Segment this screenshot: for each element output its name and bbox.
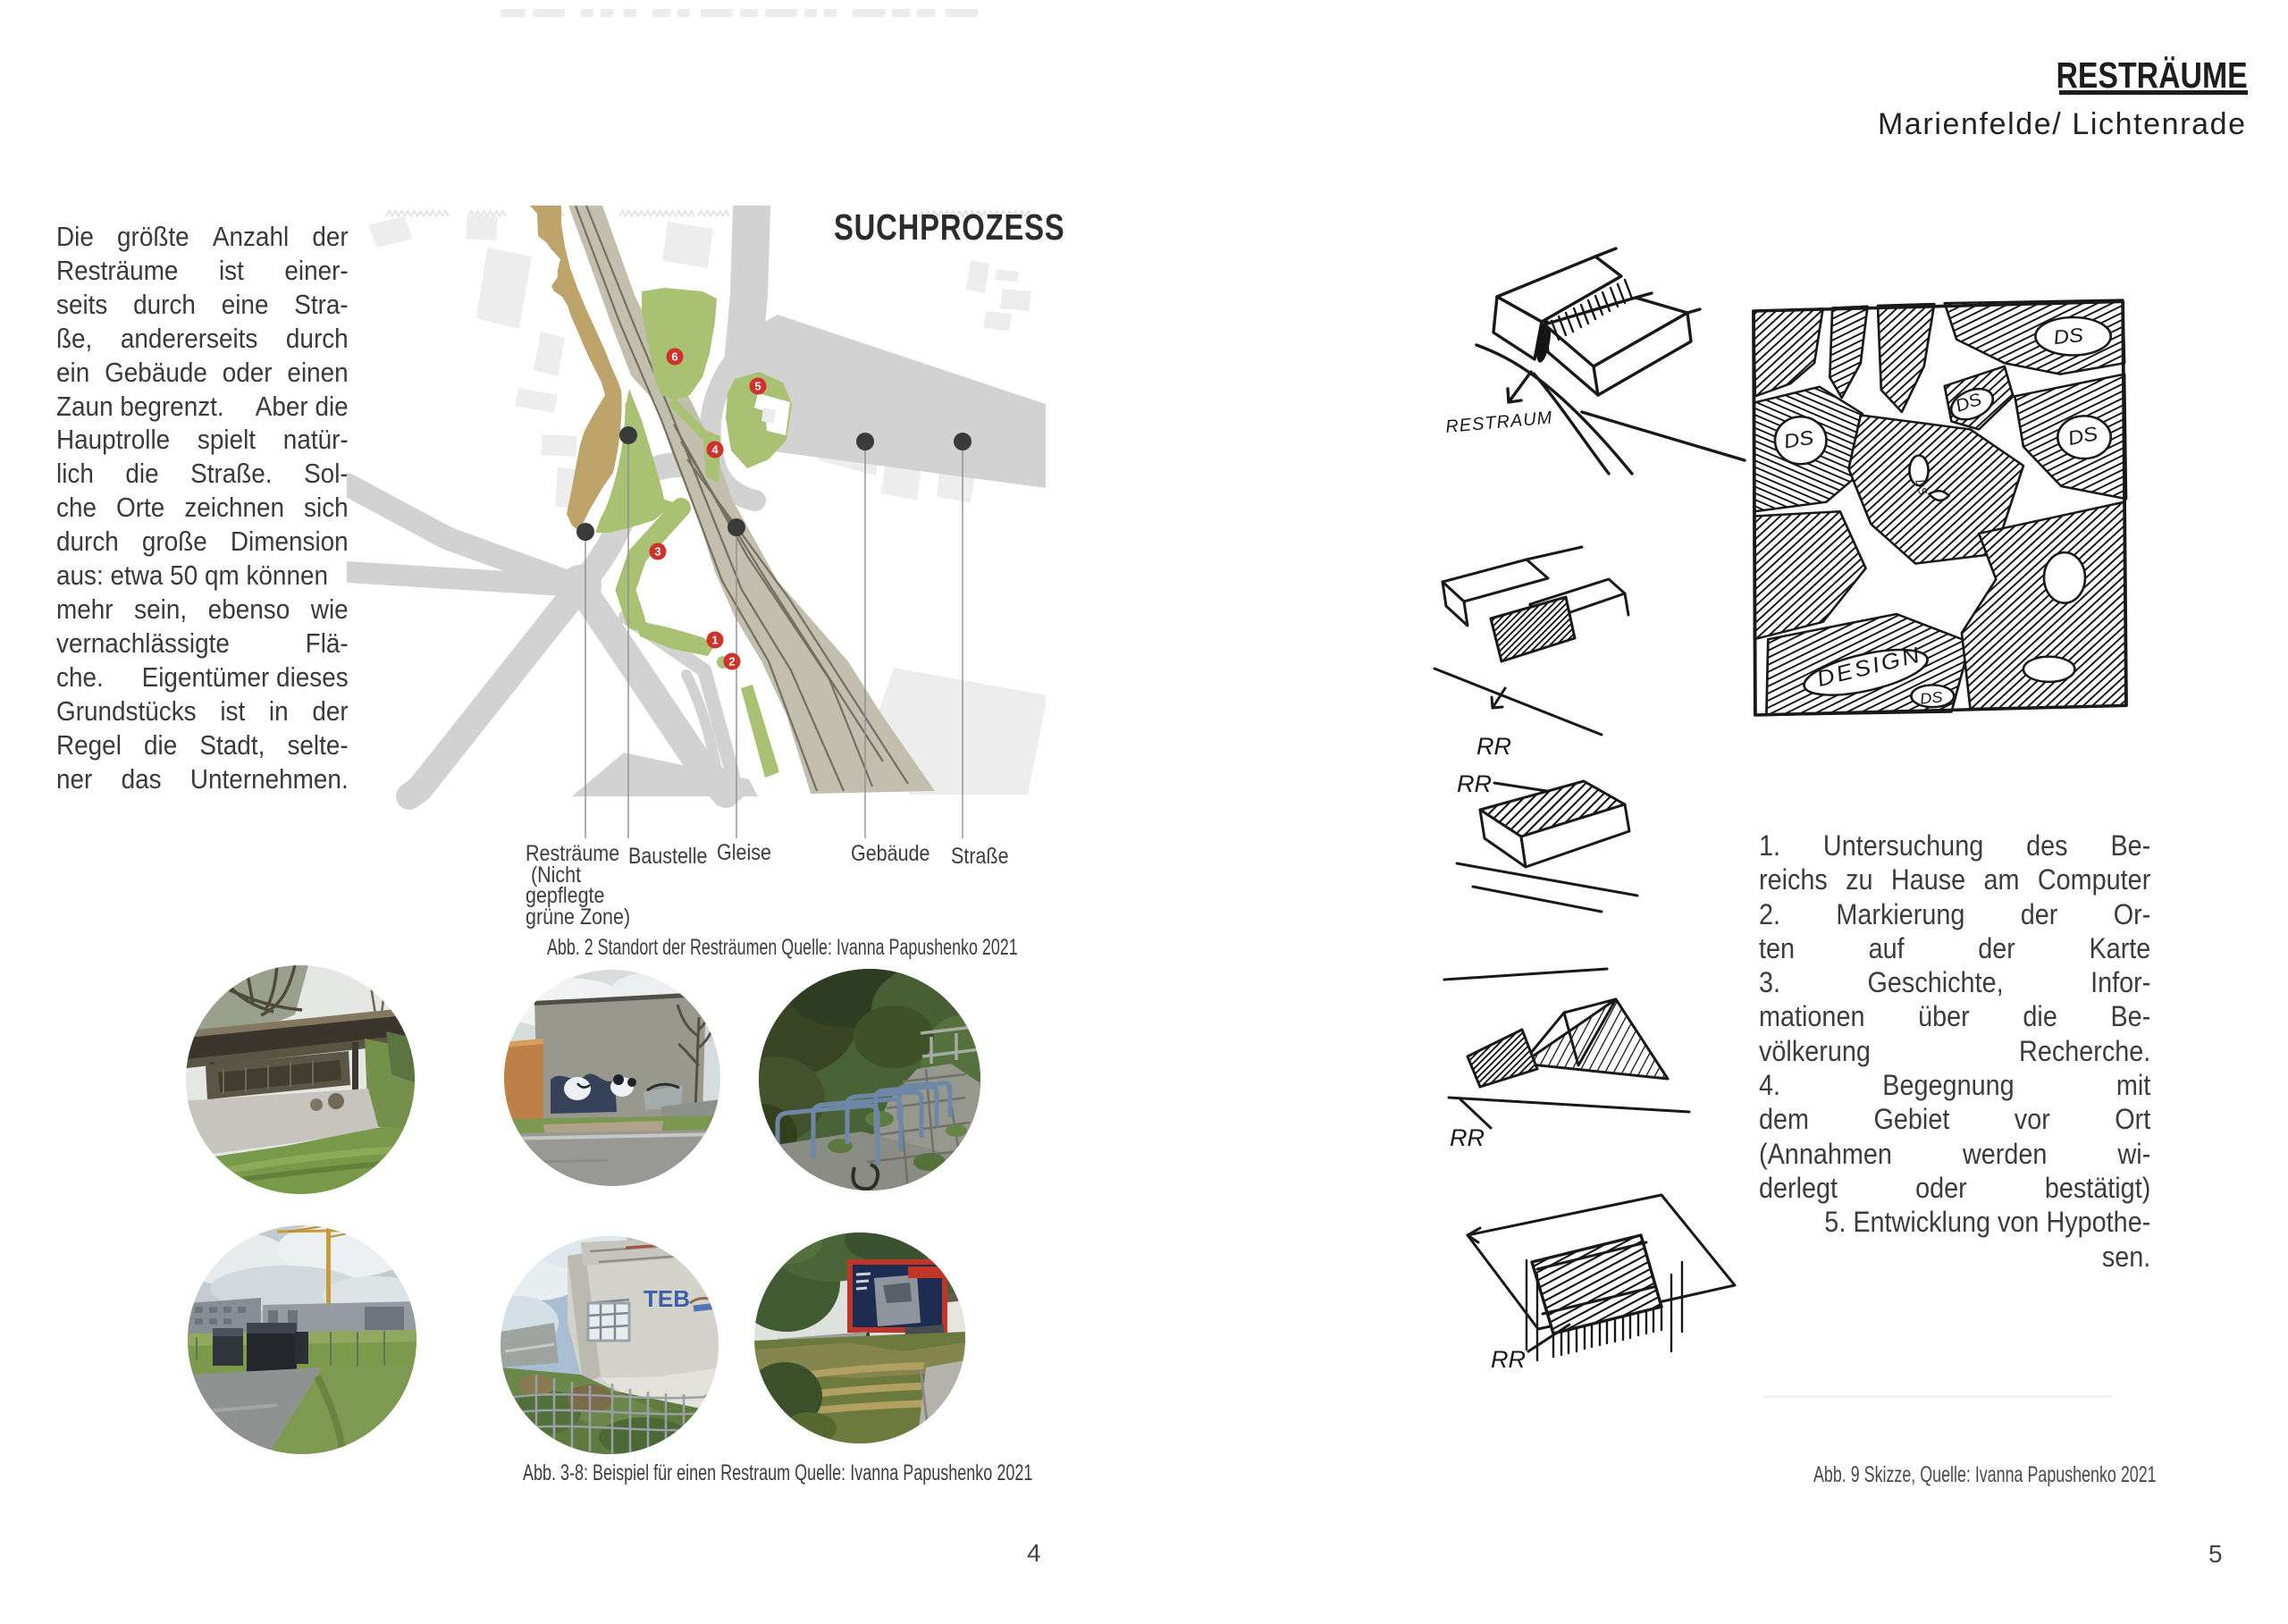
svg-text:3: 3 bbox=[654, 545, 660, 559]
svg-text:RR: RR bbox=[1457, 770, 1492, 797]
svg-text:RR: RR bbox=[1476, 733, 1511, 760]
svg-text:DS: DS bbox=[2052, 324, 2085, 349]
svg-text:4: 4 bbox=[711, 443, 719, 457]
svg-text:6: 6 bbox=[671, 350, 677, 364]
svg-text:TEB: TEB bbox=[643, 1285, 690, 1312]
svg-text:2: 2 bbox=[728, 655, 735, 669]
svg-text:DS: DS bbox=[1782, 425, 1816, 452]
svg-text:DS: DS bbox=[1919, 688, 1944, 708]
svg-text:1: 1 bbox=[711, 634, 718, 647]
svg-text:RESTRAUM: RESTRAUM bbox=[1445, 408, 1554, 437]
svg-text:RR: RR bbox=[1450, 1124, 1485, 1151]
svg-text:5: 5 bbox=[754, 380, 761, 393]
svg-text:RR: RR bbox=[1491, 1346, 1526, 1373]
